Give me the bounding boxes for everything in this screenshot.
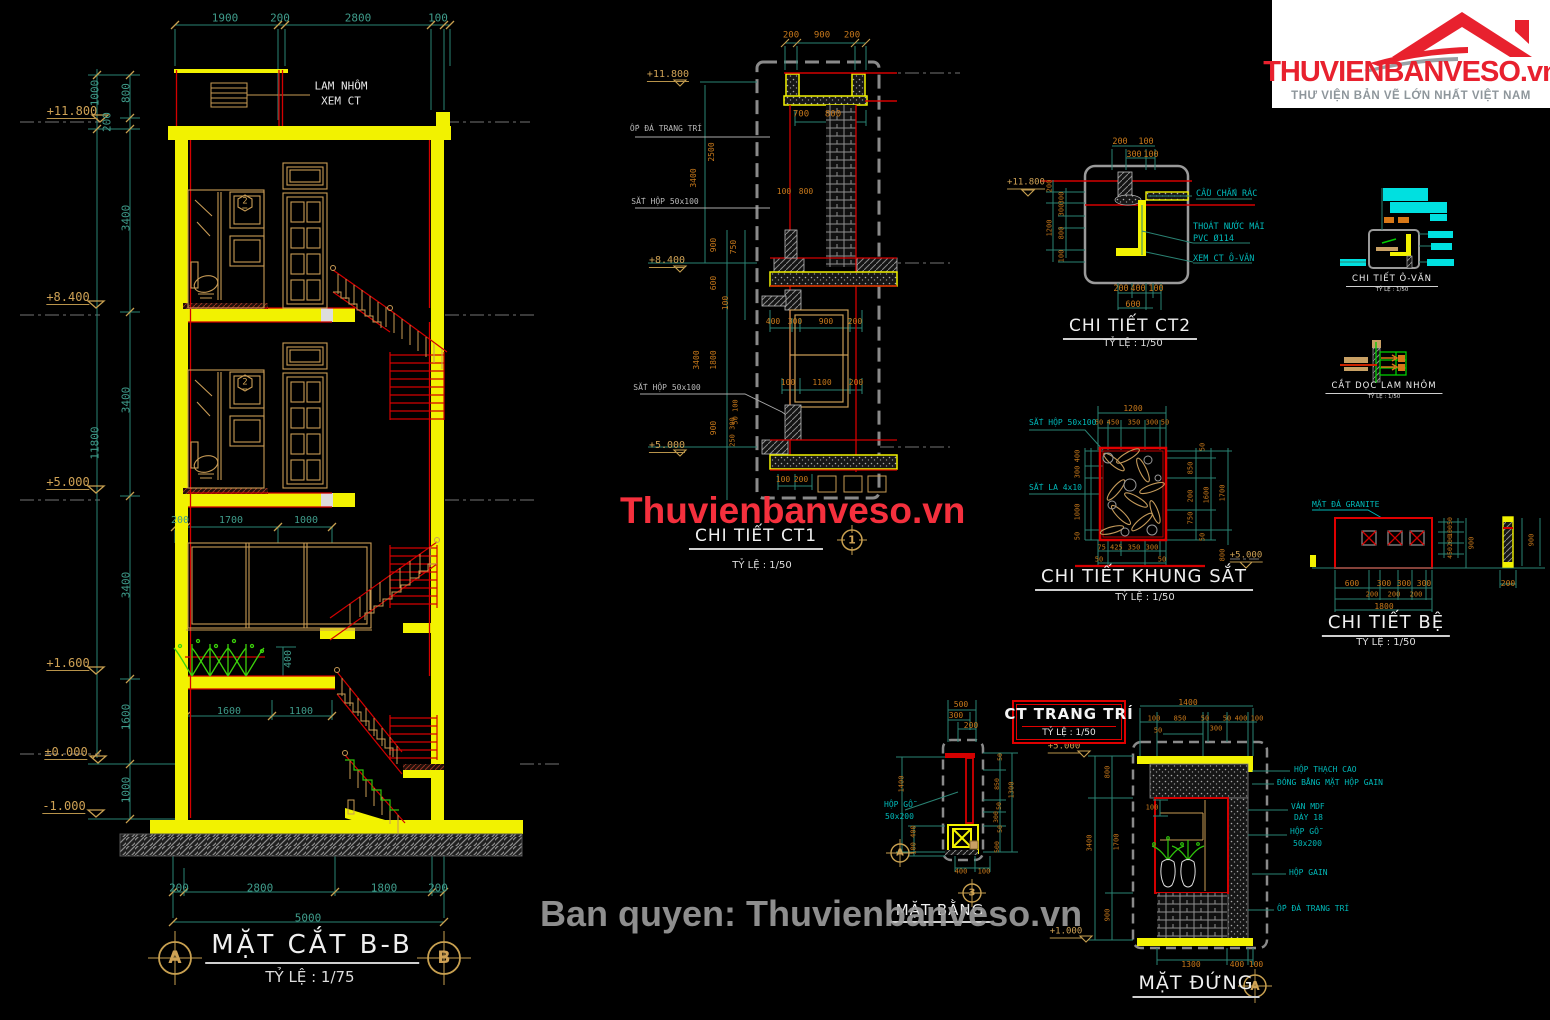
elevation-label: +5.000 [1230,552,1263,563]
dim-label: 50 [1095,557,1103,564]
text-label: SẮT HỘP 50x100 [631,198,698,206]
dim-label: 100 400 [911,825,918,855]
dim-label: 3400 [690,168,698,187]
dim-label: 750 [730,240,738,254]
dim-label: 300 [1059,192,1066,205]
dim-label: 300 [1417,580,1431,588]
dim-label: 200 [1388,592,1401,599]
dim-label: 1100 [289,707,313,717]
dim-label: 800 [121,83,132,103]
dim-label: 300 [1075,466,1082,479]
dim-label: 1600 [217,707,241,717]
note-label: HỘP GỖ [884,801,913,809]
dim-label: 300 [1146,545,1159,552]
dim-label: 100 [1146,805,1159,812]
dim-label: 50 [1200,533,1207,541]
mat-bang-bubble-a: A [896,848,904,859]
dim-label: 400 [766,318,780,326]
dim-label: 1200 [1047,220,1054,237]
watermark-bottom: Ban quyen: Thuvienbanveso.vn [540,893,1082,935]
dim-label: 3400 [693,350,701,369]
dim-label: 1200 [1123,405,1142,413]
dim-label: 100 [1059,250,1066,263]
text-label: LAM NHÔM [315,81,368,92]
dim-label: 2800 [247,883,274,894]
title-o-vang: CHI TIẾT Ô-VĂN [1346,274,1438,287]
dim-label: 1600 [1204,487,1211,504]
note-label: 50x200 [1293,840,1322,848]
dim-label: 1000 [90,80,101,107]
dim-label: 900 [1469,537,1476,550]
dim-label: 1100 [812,379,831,387]
be-linework [1310,510,1545,612]
dim-label: 850 [1174,716,1187,723]
dim-label: 1700 [219,516,243,526]
scale-khung-sat: TỶ LỆ : 1/50 [1115,592,1174,603]
mat-dung-linework [1078,706,1290,1003]
scale-ct2: TỶ LỆ : 1/50 [1103,338,1162,349]
dim-label: 3400 [121,572,132,599]
dim-label: 400 [1130,285,1145,294]
khung-sat-leaf-pattern [1100,446,1166,536]
logo-brand-text: THUVIENBANVESO.vn [1263,56,1550,89]
elevation-label: 2 [242,198,247,209]
dim-label: 200 [428,883,448,894]
note-label: SẮT LA 4x10 [1029,484,1082,492]
cad-sheet: 1900200280010010008002003400340011800340… [0,0,1550,1020]
dim-label: 100 [978,869,991,876]
dim-label: 100 [1249,961,1263,969]
dim-label: 300 [949,712,963,720]
elevation-label: 2 [242,379,247,390]
dim-label: 200 [1047,180,1054,193]
text-label: XEM CT [321,96,361,107]
dim-label: 800 [1105,766,1112,779]
note-label: SẮT HỘP 50x100 [1029,419,1096,427]
dim-label: 900 [1529,534,1536,547]
dim-label: 300 [1210,726,1223,733]
dim-label: 50 [1447,517,1454,525]
dim-label: 100 [781,379,795,387]
dim-label: 200 [1112,138,1127,147]
dim-label: 600 [1345,580,1359,588]
dim-label: 600 [710,276,718,290]
dim-label: 1400 [899,776,906,793]
elevation-label: +11.800 [647,70,689,82]
note-label: 50x200 [885,813,914,821]
note-label: XEM CT Ô-VĂN [1193,255,1254,264]
elevation-label: +8.400 [649,256,685,268]
dim-label: 1300 [1009,782,1016,799]
dim-label: 200 [102,112,113,132]
dim-label: 200 [1501,580,1515,588]
scale-ct1: TỶ LỆ : 1/50 [732,560,791,571]
dim-label: 1600 [121,704,132,731]
be-x-boxes [1362,531,1424,545]
title-mat-cat-bb: MẶT CẮT B-B [205,930,419,964]
elevation-label: +5.000 [649,441,685,453]
dim-label: 800 [825,111,841,120]
dim-label: 3400 [1087,835,1094,852]
dim-label: 200 [1410,592,1423,599]
o-vang-linework [1340,188,1454,268]
note-label: ỐP ĐÁ TRANG TRÍ [1277,905,1349,913]
dim-label: 400 [284,650,294,668]
dim-label: 200 [783,32,799,41]
dim-label: 75 425 [1097,545,1122,552]
dim-label: 100 [722,296,730,310]
dim-label: 3400 [121,205,132,232]
title-lam-nhom: CẮT DỌC LAM NHÔM [1325,381,1442,394]
dim-label: 1000 [1075,504,1082,521]
scale-o-vang: TỶ LỆ : 1/50 [1376,287,1409,293]
dim-label: 300 [1059,204,1066,217]
dim-label: 100 [776,476,790,484]
dim-label: 850 [994,778,1001,790]
dim-label: 800 [1220,549,1227,562]
dim-label: 350 [1128,420,1141,427]
dim-label: 350 [1128,545,1141,552]
ct-trang-tri-box: CT TRANG TRÍ TỶ LỆ : 1/50 [1012,700,1126,744]
ct-trang-tri-divider [1022,726,1116,727]
dim-label: 5000 [295,913,322,924]
scale-mat-cat-bb: TỶ LỆ : 1/75 [265,968,354,986]
scale-ct-trang-tri: TỶ LỆ : 1/50 [1042,728,1096,738]
dim-label: 900 [710,238,718,252]
note-label: THOÁT NƯỚC MÁI [1193,223,1265,232]
dim-label: 1000 [294,516,318,526]
elevation-label: +11.800 [47,105,98,119]
dim-label: 1800 [710,350,718,369]
dim-label: 1700 [1114,834,1121,851]
dim-label: 300 [788,318,802,326]
dim-label: 300 [1146,420,1159,427]
dim-label: 100 [1138,138,1153,147]
dim-label: 800 [799,188,813,196]
title-mat-dung: MẶT ĐỨNG [1133,972,1260,998]
dim-label: 3400 [121,387,132,414]
dim-label: 2800 [345,13,372,24]
dim-label: 200 [1188,490,1195,503]
dim-label: 50 [1201,716,1209,723]
dim-label: 11800 [90,426,101,459]
dim-label: 1700 [1220,485,1227,502]
note-label: MẶT ĐÁ GRANITE [1312,501,1379,509]
note-label: ĐÓNG BẰNG MẶT HỘP GAIN [1277,779,1383,787]
dim-label: 1300 [1181,961,1200,969]
dim-label: 300 [1397,580,1411,588]
note-label: HỘP THẠCH CAO [1294,766,1357,774]
dim-label: 1000 [121,777,132,804]
mat-dung-bubble-a: A [1250,979,1259,993]
text-label: SẮT HỘP 50x100 [633,384,700,392]
dim-label: 100 [1143,151,1158,160]
elevation-label: +11.800 [1007,179,1045,190]
elevation-label: +8.400 [46,291,89,305]
dim-label: 50 [1158,557,1166,564]
note-label: CẦU CHẮN RÁC [1196,190,1257,199]
dim-label: 400 [1075,450,1082,463]
dim-label: 300 [1377,580,1391,588]
logo: THUVIENBANVESO.vn THƯ VIỆN BẢN VẼ LỚN NH… [1272,0,1550,108]
dim-label: 200 [270,13,290,24]
dim-label: 200 [169,883,189,894]
dim-label: 500 [954,701,968,709]
title-ct-trang-tri: CT TRANG TRÍ [1004,705,1133,723]
dim-label: 400 [1230,961,1244,969]
dim-label: 400 [955,869,968,876]
dim-label: 50 [1223,716,1231,723]
elevation-label: -1.000 [42,800,85,814]
scale-lam-nhom: TỶ LỆ : 1/50 [1368,394,1401,400]
ct1-linework [635,39,897,555]
dim-label: 200 [849,379,863,387]
dim-label: 200 [848,318,862,326]
dim-label: 200 [1113,285,1128,294]
grid-bubble-b: B [438,948,451,968]
title-khung-sat: CHI TIẾT KHUNG SẮT [1035,566,1253,591]
logo-tagline-text: THƯ VIỆN BẢN VẼ LỚN NHẤT VIỆT NAM [1291,90,1531,102]
grid-bubble-a: A [168,948,181,968]
title-ct2: CHI TIẾT CT2 [1063,316,1197,340]
dim-label: 900 [710,421,718,435]
note-label: HỘP GAIN [1289,869,1328,877]
note-label: DÀY 18 [1294,814,1323,822]
dim-label: 700 [793,111,809,120]
elevation-label: +5.000 [1048,743,1081,754]
dim-label: 50 [1154,728,1162,735]
dim-label: 100 [1148,285,1163,294]
dim-label: 50 [996,802,1003,810]
dim-label: 50 [997,753,1004,761]
text-label: ỐP ĐÁ TRANG TRÍ [630,125,702,133]
dim-label: 1400 [1178,699,1197,707]
dim-label: 450 [1107,420,1120,427]
dim-label: 100 [1148,716,1161,723]
note-label: VÁN MDF [1291,803,1325,811]
dim-label: 1800 [1374,603,1393,611]
dim-label: 200 [1366,592,1379,599]
dim-label: 50 [1200,443,1207,451]
dim-label: 450 [1447,547,1454,559]
note-label: PVC Ø114 [1193,235,1234,244]
lam-nhom-linework [1340,340,1406,383]
stair-balusters [331,266,443,834]
title-be: CHI TIẾT BỆ [1322,612,1450,637]
dim-label: 50 [1161,420,1169,427]
elevation-label: ±0.000 [44,746,87,760]
dim-label: 200 [964,722,978,730]
scale-be: TỶ LỆ : 1/50 [1356,637,1415,648]
dim-label: 500 [994,841,1001,853]
dim-label: 600 [1125,301,1140,310]
dim-label: 50 [997,825,1004,833]
dim-label: 50 [1075,532,1082,540]
dim-label: 900 [1105,909,1112,922]
dim-label: 2500 [708,142,716,161]
dim-label: 100 [1251,716,1264,723]
elevation-label: +5.000 [46,476,89,490]
dim-label: 200 [1447,535,1454,547]
dim-label: 750 [1188,512,1195,525]
ct1-marker-bubble: 1 [848,534,856,547]
dim-label: 800 [1059,227,1066,240]
dim-label: 300 [993,811,1000,823]
dim-label: 900 [819,318,833,326]
elevation-label: +1.600 [46,657,89,671]
dim-label: 100 [777,188,791,196]
watermark-center: Thuvienbanveso.vn [620,490,965,532]
dim-label: 100 [428,13,448,24]
dim-label: 250 300 [730,417,737,447]
dim-label: 400 [1235,716,1248,723]
dim-label: 1800 [371,883,398,894]
dim-label: 300 [1126,151,1141,160]
dim-label: 200 [171,516,189,526]
dim-label: 900 [814,32,830,41]
dim-label: 850 [1188,462,1195,475]
dim-label: 200 [794,476,808,484]
note-label: HỘP GỖ [1290,828,1319,836]
dim-label: 200 [844,32,860,41]
dim-label: 1900 [212,13,239,24]
